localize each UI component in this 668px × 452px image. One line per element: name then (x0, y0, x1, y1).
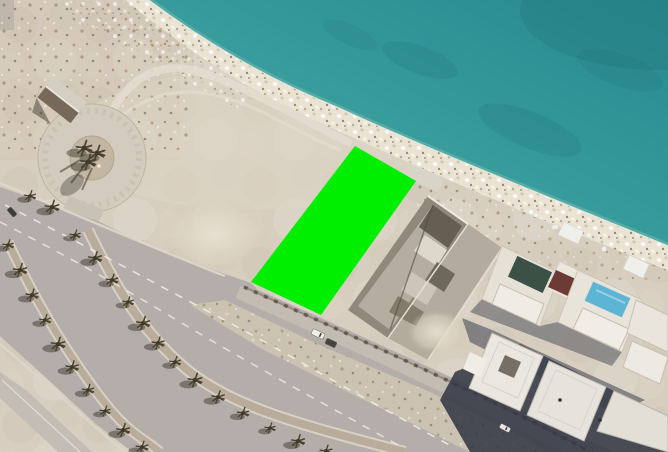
satellite-map-view (0, 0, 668, 452)
satellite-canvas (0, 0, 668, 452)
sand-mound (407, 310, 467, 354)
